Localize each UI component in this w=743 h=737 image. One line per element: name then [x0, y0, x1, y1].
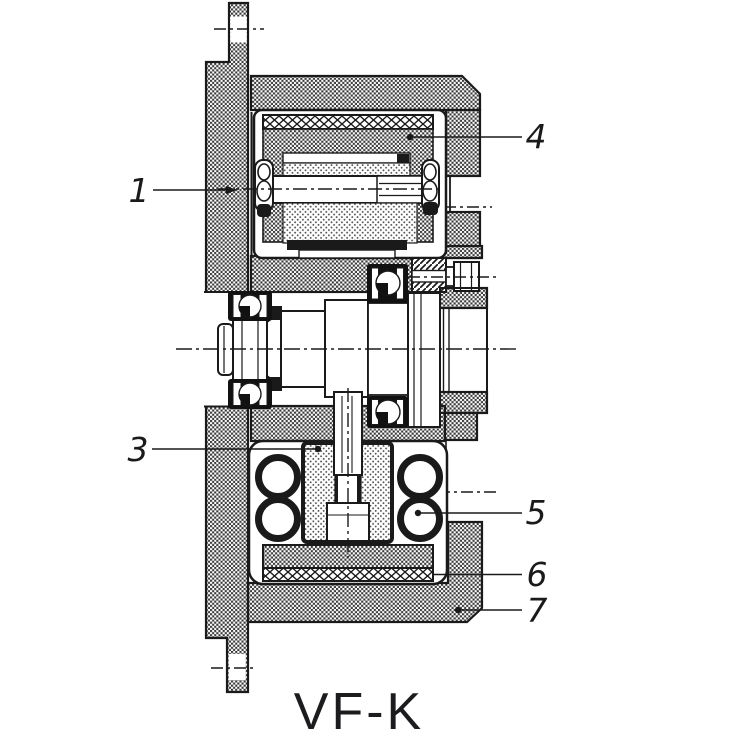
callout-1-label: 1	[129, 171, 150, 210]
callout-4-label: 4	[526, 117, 547, 156]
wheel-toothed-rim	[263, 115, 433, 129]
ball-bearing-upper-right	[367, 264, 408, 303]
clamp-bolt	[408, 258, 498, 292]
figure-caption: VF-K	[294, 683, 424, 737]
gasket-strip	[263, 568, 433, 581]
callout-3-label: 3	[128, 430, 149, 469]
ball-bearing-lower-right	[367, 396, 408, 428]
callout-5-label: 5	[526, 493, 547, 532]
gearbox-cross-section-diagram: 1 3 4 5 6 7 VF-K	[0, 0, 743, 737]
technical-drawing-page: 1 3 4 5 6 7 VF-K	[0, 0, 743, 737]
ball-bearing-lower-left	[228, 379, 272, 409]
ball-bearing-upper-left	[228, 291, 272, 321]
callout-7-label: 7	[527, 591, 548, 630]
callout-6-label: 6	[527, 555, 548, 594]
wheel-shaft-bearing-right	[422, 160, 439, 215]
